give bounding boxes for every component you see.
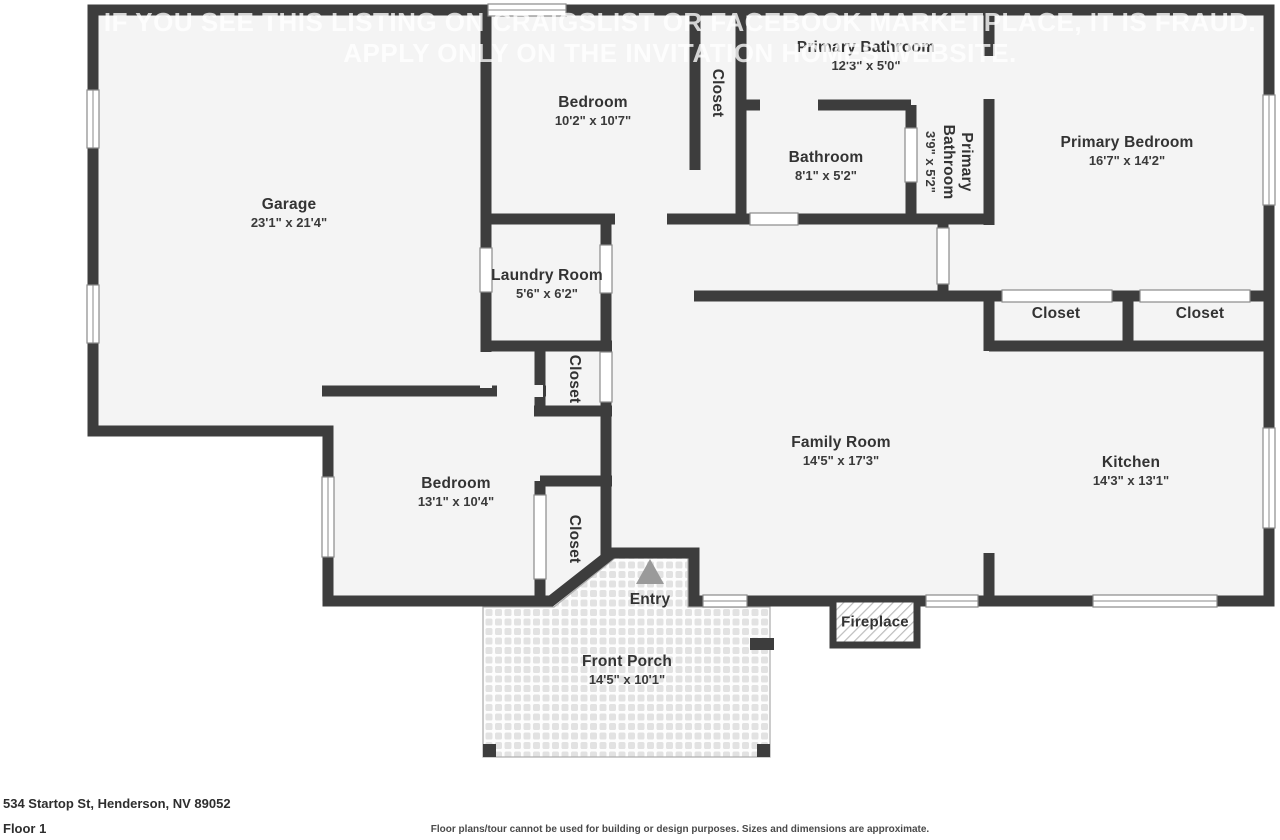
closet-b-doors (1140, 290, 1250, 302)
hall-cased-opening (750, 213, 798, 225)
garage-floor (93, 10, 486, 431)
laundry-floor (486, 219, 612, 391)
fireplace-box (833, 599, 917, 645)
floor-areas (93, 10, 1269, 601)
floor-plan-page: Garage 23'1" x 21'4" Bedroom 10'2" x 10'… (0, 0, 1280, 840)
closet-a-doors (1002, 290, 1112, 302)
floor-plan-svg (0, 0, 1280, 840)
laundry-east-door (600, 245, 612, 293)
laundry-west-door (480, 248, 492, 292)
primary-bath-opening (760, 99, 818, 111)
bedroom2-floor (322, 391, 612, 601)
bedroom1-door-opening (615, 213, 667, 225)
garage-hall-opening (480, 352, 492, 388)
porch-post-left (483, 744, 496, 757)
primary-bath2-door (905, 128, 917, 182)
porch-step (750, 638, 774, 650)
hall-closet-door (600, 352, 612, 402)
bedroom2-door-opening (497, 385, 543, 397)
primary-bedroom-door (937, 228, 949, 284)
porch-post-right (757, 744, 770, 757)
plan-disclaimer: Floor plans/tour cannot be used for buil… (40, 824, 1280, 835)
bedroom2-closet-door (534, 495, 546, 579)
property-address: 534 Startop St, Henderson, NV 89052 (3, 796, 231, 811)
